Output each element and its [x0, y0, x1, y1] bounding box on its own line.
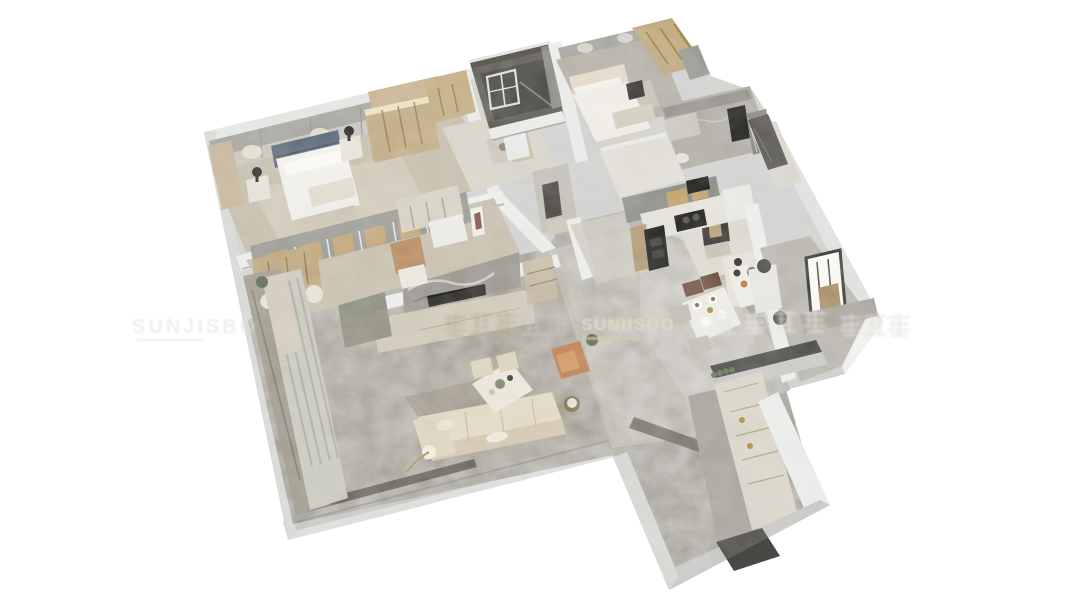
svg-text:SUNJISBO: SUNJISBO — [132, 316, 258, 338]
svg-text:SUNIISBO: SUNIISBO — [581, 315, 675, 334]
